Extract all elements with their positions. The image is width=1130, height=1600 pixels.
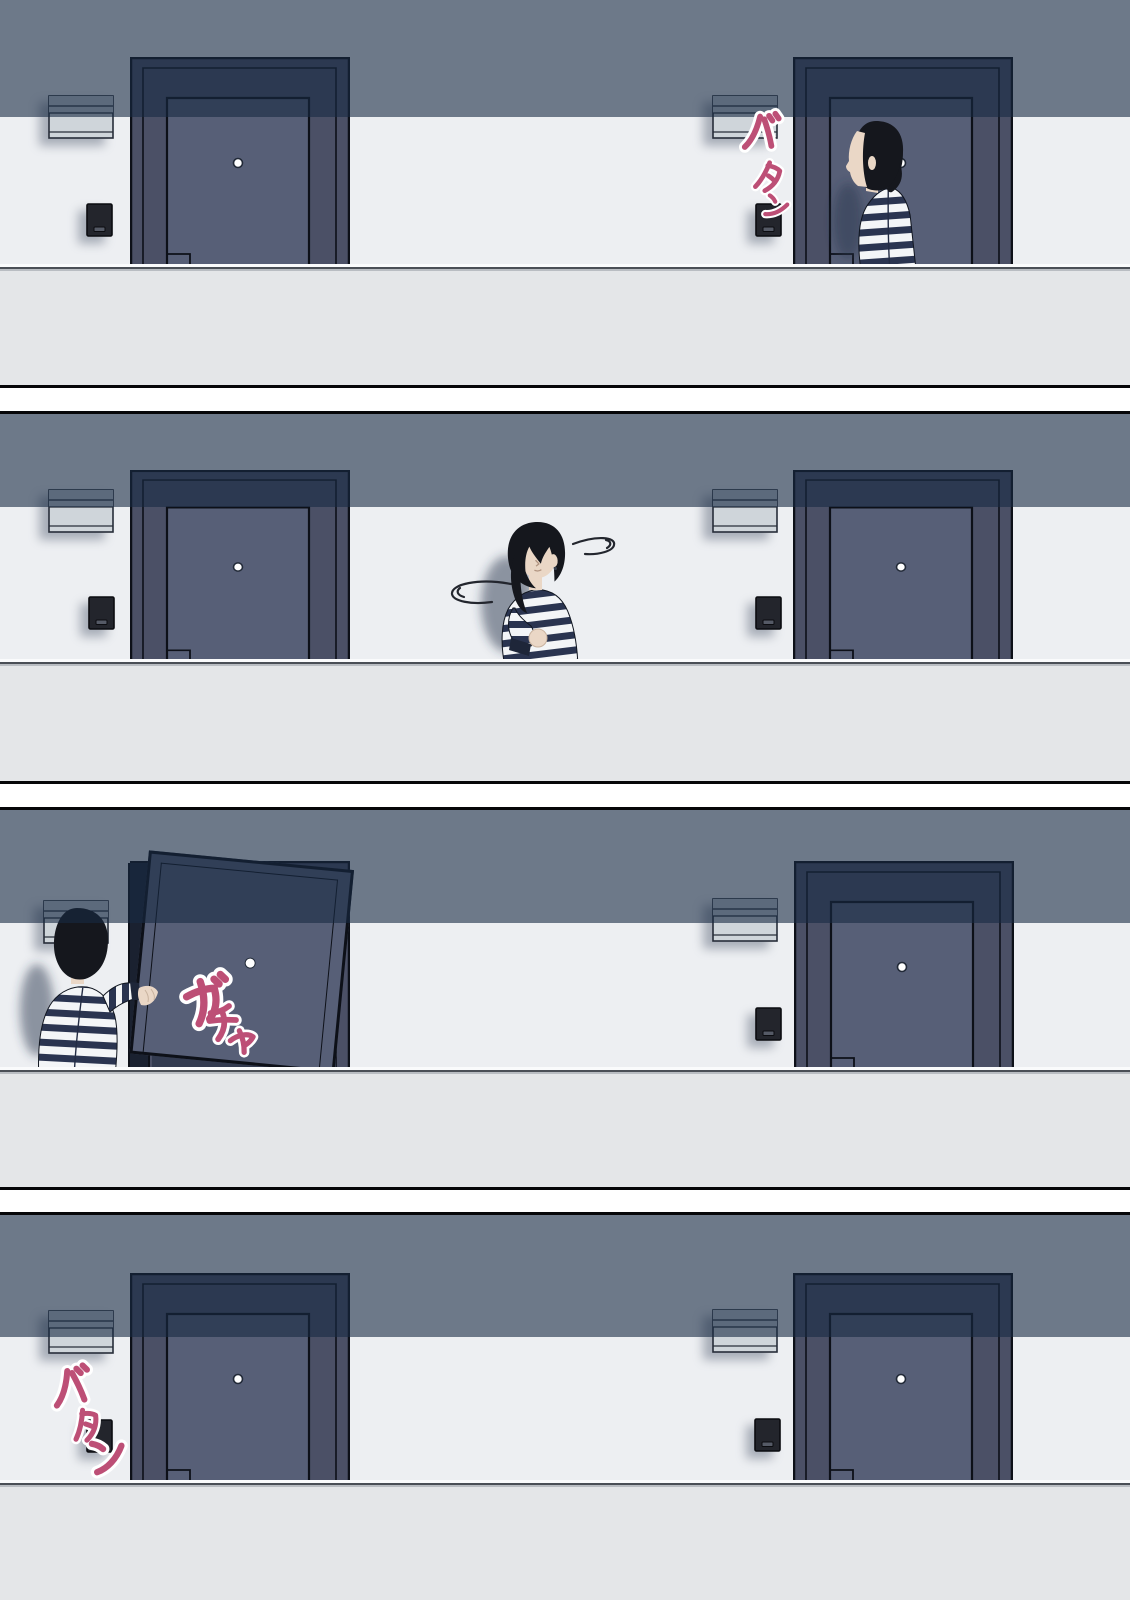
woman-at-right-door — [836, 119, 920, 269]
intercom-left — [88, 596, 115, 630]
intercom-left — [86, 203, 113, 237]
panel-1-scene — [0, 0, 1130, 385]
sfx-gacha — [176, 962, 276, 1058]
woman-walking — [445, 512, 630, 664]
woman-opening-door — [15, 902, 165, 1070]
panel-1 — [0, 0, 1130, 388]
sfx-batan — [736, 104, 800, 220]
intercom-right — [754, 1418, 781, 1452]
parapet-ledge — [0, 662, 1130, 781]
shadow-band — [0, 414, 1130, 507]
panel-3 — [0, 807, 1130, 1190]
panel-3-scene — [0, 810, 1130, 1187]
intercom-right — [755, 596, 782, 630]
panel-4 — [0, 1212, 1130, 1600]
panel-4-scene — [0, 1215, 1130, 1600]
parapet-ledge — [0, 1070, 1130, 1187]
ear — [868, 156, 876, 170]
intercom-right — [755, 1007, 782, 1041]
panel-2 — [0, 411, 1130, 784]
shadow-band — [0, 810, 1130, 923]
panel-2-scene — [0, 414, 1130, 781]
woman-torso — [855, 187, 916, 271]
parapet-ledge — [0, 1483, 1130, 1600]
fist — [529, 629, 547, 647]
comic-page — [0, 0, 1130, 1600]
parapet-ledge — [0, 267, 1130, 385]
shadow-band — [0, 0, 1130, 117]
shadow-band — [0, 1215, 1130, 1337]
sfx-batan — [46, 1361, 142, 1471]
